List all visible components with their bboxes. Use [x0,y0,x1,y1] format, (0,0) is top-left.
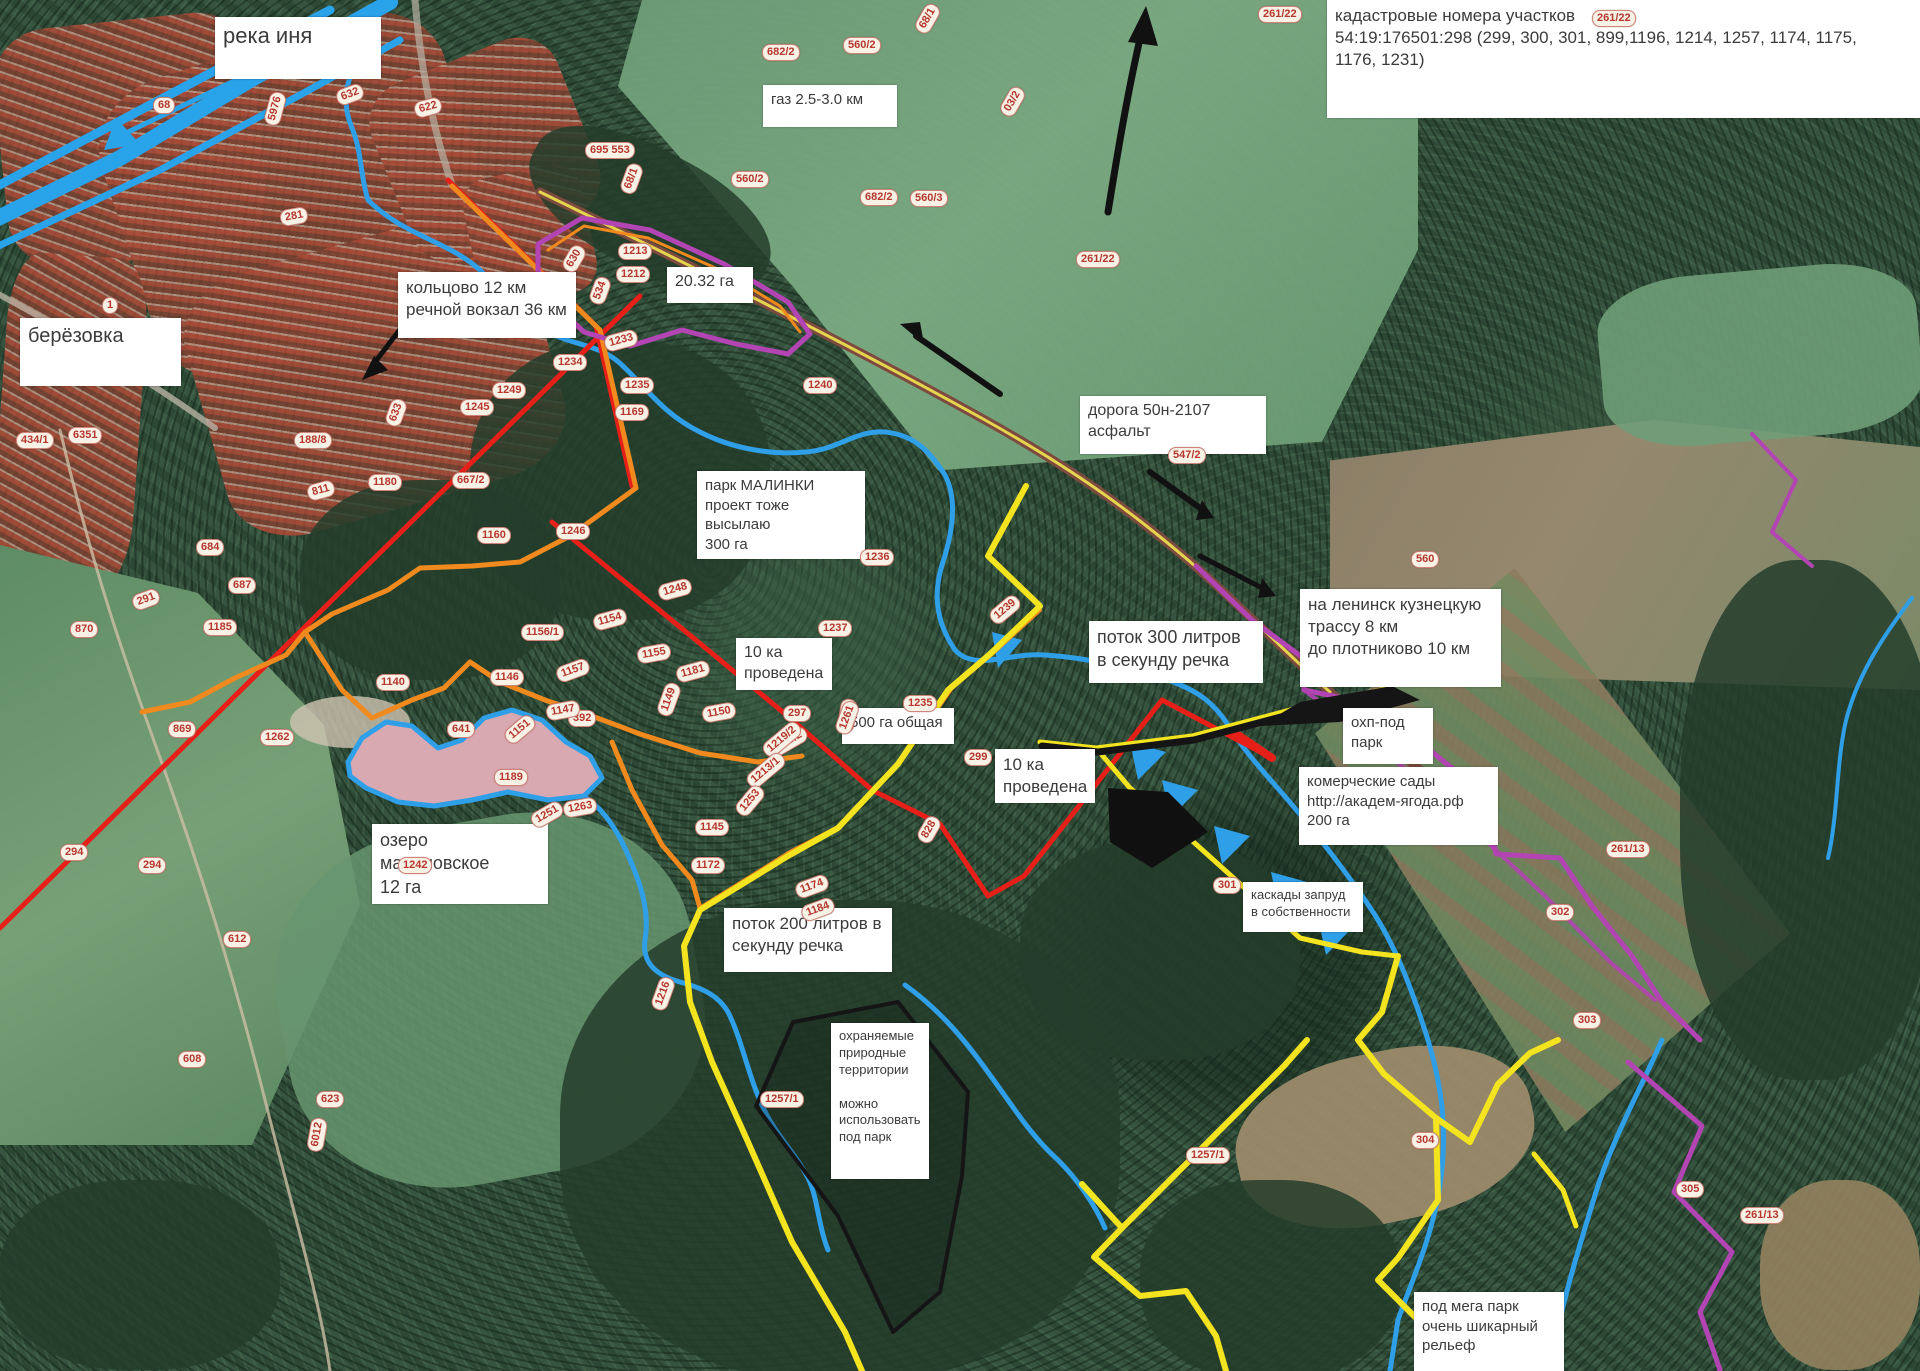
cadastral-label: 560/2 [843,37,881,54]
annotation-ga-20-32: 20.32 га [667,267,753,303]
cadastral-label: 608 [178,1051,206,1068]
cadastral-label: 261/13 [1740,1207,1784,1224]
cadastral-label: 869 [168,721,196,738]
cadastral-label: 261/22 [1592,10,1636,27]
cadastral-label: 623 [316,1091,344,1108]
cadastral-label: 1140 [376,674,410,691]
satellite-cadastral-map: река инякадастровые номера участков 54:1… [0,0,1920,1371]
cadastral-label: 1212 [616,266,650,283]
cadastral-label: 1249 [492,382,526,399]
cadastral-label: 1257/1 [1186,1147,1230,1164]
cadastral-label: 1185 [203,619,237,636]
cadastral-label: 641 [447,721,475,738]
cadastral-label: 687 [228,577,256,594]
cadastral-label: 1234 [553,354,587,371]
annotation-kommercheskie-sady: комерческие сады http://академ-ягода.рф … [1299,767,1498,845]
black-area-blob [1108,788,1208,868]
annotation-mega-park: под мега парк очень шикарный рельеф [1414,1292,1564,1371]
cadastral-label: 302 [1546,904,1574,921]
road-direction-arrow-se [1150,472,1200,508]
cadastral-label: 1172 [691,857,725,874]
cadastral-label: 1262 [260,729,294,746]
annotation-kaskady: каскады запруд в собственности [1243,882,1363,932]
cadastral-label: 1156/1 [521,624,564,641]
cadastral-label: 560/2 [731,171,769,188]
cadastral-label: 261/13 [1606,841,1650,858]
cadastral-label: 303 [1573,1012,1601,1029]
cadastral-label: 870 [70,621,98,638]
annotation-potok-300: поток 300 литров в секунду речка [1089,621,1263,683]
cadastral-label: 682/2 [860,189,898,206]
annotation-ohranyaemye: охраняемые природные территории можно ис… [831,1023,929,1179]
cadastral-label: 294 [138,857,166,874]
purple-boundary-south [1628,1062,1732,1370]
map-vector-overlay [0,0,1920,1371]
cadastral-label: 684 [196,539,224,556]
annotation-ohp-pod-park: охп-под парк [1343,708,1433,764]
annotation-park-malinki: парк МАЛИНКИ проект тоже высылаю 300 га [697,471,865,559]
cadastral-label: 1257/1 [760,1091,804,1108]
yellow-boundary-se1 [1358,956,1558,1142]
cadastral-label: 1145 [695,819,729,836]
cadastral-label: 1246 [556,523,590,540]
annotation-gaz: газ 2.5-3.0 км [763,85,897,127]
lake-malinovskoe [348,710,602,806]
cadastral-label: 6351 [68,427,102,444]
cadastral-label: 1245 [460,399,494,416]
cadastral-label: 1235 [620,377,654,394]
cadastral-label: 1169 [615,404,649,421]
annotation-koltsovo: кольцово 12 км речной вокзал 36 км [398,272,576,338]
cadastral-label: 560 [1411,551,1439,568]
cadastral-label: 1146 [490,669,524,686]
stream-east-edge [1828,598,1912,858]
cadastral-label: 1236 [860,549,894,566]
cadastral-label: 261/22 [1258,6,1302,23]
annotation-doroga-50n-2107: дорога 50н-2107 асфальт [1080,396,1266,454]
cadastral-label: 434/1 [16,432,54,449]
cadastral-label: 261/22 [1076,251,1120,268]
cadastral-label: 68 [153,97,175,114]
annotation-reka-inya: река иня [215,17,381,79]
road-minor [415,0,452,185]
cadastral-label: 1235 [903,695,937,712]
cadastral-label: 294 [60,844,88,861]
annotation-lep-10-2: 10 ка проведена [995,749,1095,803]
yellow-boundary-se3 [1094,1040,1307,1371]
cadastral-label: 695 553 [585,142,635,159]
cadastral-label: 1213 [618,243,652,260]
cadastral-label: 1180 [368,474,402,491]
road-track [60,430,330,1371]
annotation-ga-500: 500 га общая [842,708,954,744]
cadastral-label: 1 [102,297,118,314]
purple-boundary-east [1752,434,1812,566]
cadastral-label: 612 [223,931,251,948]
annotation-leninsk-trassa: на ленинск кузнецкую трассу 8 км до плот… [1300,589,1501,687]
cadastral-label: 682/2 [762,44,800,61]
annotation-lep-10-1: 10 ка проведена [736,638,832,690]
cadastral-label: 301 [1213,877,1241,894]
cadastral-label: 1237 [818,620,852,637]
cadastral-label: 667/2 [452,472,490,489]
cadastral-label: 1160 [477,527,511,544]
orange-boundary-south [612,742,700,908]
cadastral-label: 547/2 [1168,447,1206,464]
gas-direction-arrow [1108,30,1142,212]
cadastral-label: 304 [1411,1132,1439,1149]
annotation-berezovka: берёзовка [20,318,181,386]
cadastral-label: 297 [783,705,811,722]
cadastral-label: 1242 [398,857,432,874]
cadastral-label: 188/8 [294,432,332,449]
cadastral-label: 560/3 [910,190,948,207]
cadastral-label: 305 [1676,1181,1704,1198]
cadastral-label: 299 [964,749,992,766]
cadastral-label: 1189 [494,769,528,786]
yellow-boundary-se5 [1534,1154,1576,1226]
cadastral-label: 1240 [803,377,837,394]
